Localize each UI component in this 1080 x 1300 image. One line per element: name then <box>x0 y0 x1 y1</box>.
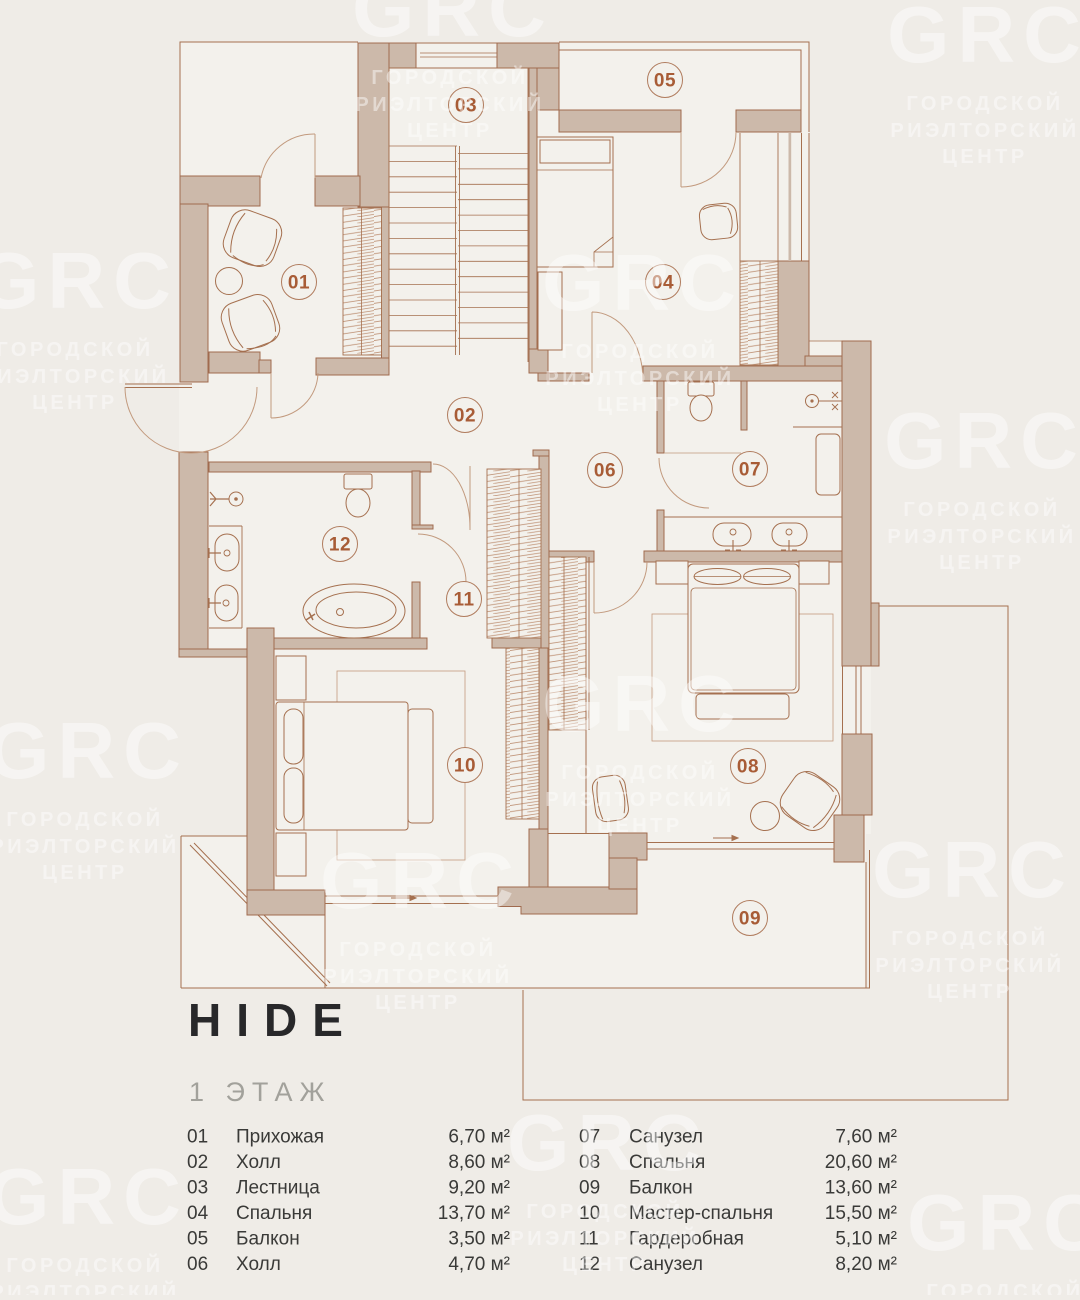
svg-text:02: 02 <box>454 406 476 427</box>
svg-text:01: 01 <box>288 273 310 294</box>
svg-text:07: 07 <box>739 460 761 481</box>
svg-text:GRC: GRC <box>542 238 744 327</box>
svg-text:РИЭЛТОРСКИЙ: РИЭЛТОРСКИЙ <box>0 834 180 858</box>
svg-text:ЦЕНТР: ЦЕНТР <box>42 862 127 884</box>
svg-text:ГОРОДСКОЙ: ГОРОДСКОЙ <box>926 1279 1080 1295</box>
svg-text:09: 09 <box>739 909 761 930</box>
svg-text:ГОРОДСКОЙ: ГОРОДСКОЙ <box>0 337 154 361</box>
svg-text:GRC: GRC <box>0 236 179 325</box>
svg-text:6,70 м²: 6,70 м² <box>448 1127 510 1148</box>
svg-text:РИЭЛТОРСКИЙ: РИЭЛТОРСКИЙ <box>890 118 1079 142</box>
svg-text:10: 10 <box>454 756 476 777</box>
svg-text:РИЭЛТОРСКИЙ: РИЭЛТОРСКИЙ <box>510 1226 699 1250</box>
svg-text:Холл: Холл <box>236 1152 281 1173</box>
svg-text:15,50 м²: 15,50 м² <box>825 1203 897 1224</box>
svg-text:1 ЭТАЖ: 1 ЭТАЖ <box>189 1077 331 1107</box>
svg-text:Балкон: Балкон <box>236 1229 300 1250</box>
svg-text:GRC: GRC <box>507 1098 709 1187</box>
svg-text:ЦЕНТР: ЦЕНТР <box>942 146 1027 168</box>
svg-text:3,50 м²: 3,50 м² <box>448 1229 510 1250</box>
svg-text:GRC: GRC <box>884 396 1080 485</box>
svg-text:GRC: GRC <box>907 1178 1080 1267</box>
svg-text:7,60 м²: 7,60 м² <box>835 1127 897 1148</box>
svg-text:ГОРОДСКОЙ: ГОРОДСКОЙ <box>903 497 1060 521</box>
svg-text:РИЭЛТОРСКИЙ: РИЭЛТОРСКИЙ <box>355 92 544 116</box>
svg-text:ЦЕНТР: ЦЕНТР <box>562 1254 647 1276</box>
svg-text:12: 12 <box>329 535 351 556</box>
svg-text:РИЭЛТОРСКИЙ: РИЭЛТОРСКИЙ <box>0 1280 180 1295</box>
svg-text:РИЭЛТОРСКИЙ: РИЭЛТОРСКИЙ <box>875 953 1064 977</box>
svg-text:ЦЕНТР: ЦЕНТР <box>32 392 117 414</box>
svg-text:GRC: GRC <box>872 825 1074 914</box>
svg-text:ЦЕНТР: ЦЕНТР <box>597 394 682 416</box>
svg-text:GRC: GRC <box>887 0 1080 79</box>
svg-text:GRC: GRC <box>542 659 744 748</box>
svg-text:GRC: GRC <box>352 0 554 53</box>
svg-text:ГОРОДСКОЙ: ГОРОДСКОЙ <box>906 91 1063 115</box>
svg-text:РИЭЛТОРСКИЙ: РИЭЛТОРСКИЙ <box>323 964 512 988</box>
svg-text:ГОРОДСКОЙ: ГОРОДСКОЙ <box>339 937 496 961</box>
svg-text:HIDE: HIDE <box>188 994 358 1046</box>
svg-text:05: 05 <box>187 1229 208 1250</box>
svg-text:ГОРОДСКОЙ: ГОРОДСКОЙ <box>891 926 1048 950</box>
svg-text:ГОРОДСКОЙ: ГОРОДСКОЙ <box>561 339 718 363</box>
svg-text:8,20 м²: 8,20 м² <box>835 1254 897 1275</box>
svg-text:GRC: GRC <box>0 1152 189 1241</box>
svg-text:4,70 м²: 4,70 м² <box>448 1254 510 1275</box>
svg-text:8,60 м²: 8,60 м² <box>448 1152 510 1173</box>
svg-text:Холл: Холл <box>236 1254 281 1275</box>
svg-text:GRC: GRC <box>320 836 522 925</box>
svg-text:Прихожая: Прихожая <box>236 1127 324 1148</box>
svg-text:ЦЕНТР: ЦЕНТР <box>407 120 492 142</box>
svg-text:01: 01 <box>187 1127 208 1148</box>
svg-text:9,20 м²: 9,20 м² <box>448 1178 510 1199</box>
svg-text:ГОРОДСКОЙ: ГОРОДСКОЙ <box>526 1199 683 1223</box>
svg-text:06: 06 <box>187 1254 208 1275</box>
svg-text:РИЭЛТОРСКИЙ: РИЭЛТОРСКИЙ <box>545 787 734 811</box>
svg-text:20,60 м²: 20,60 м² <box>825 1152 897 1173</box>
svg-text:11: 11 <box>453 590 474 611</box>
svg-text:5,10 м²: 5,10 м² <box>835 1229 897 1250</box>
svg-text:06: 06 <box>594 461 616 482</box>
svg-text:ЦЕНТР: ЦЕНТР <box>939 552 1024 574</box>
svg-text:08: 08 <box>737 757 759 778</box>
svg-text:02: 02 <box>187 1152 208 1173</box>
svg-text:ГОРОДСКОЙ: ГОРОДСКОЙ <box>371 65 528 89</box>
svg-text:13,60 м²: 13,60 м² <box>825 1178 897 1199</box>
svg-text:04: 04 <box>187 1203 209 1224</box>
svg-text:ГОРОДСКОЙ: ГОРОДСКОЙ <box>6 807 163 831</box>
svg-text:РИЭЛТОРСКИЙ: РИЭЛТОРСКИЙ <box>0 364 170 388</box>
svg-text:Спальня: Спальня <box>236 1203 312 1224</box>
svg-text:ЦЕНТР: ЦЕНТР <box>375 992 460 1014</box>
svg-text:GRC: GRC <box>0 706 189 795</box>
svg-text:13,70 м²: 13,70 м² <box>438 1203 510 1224</box>
svg-text:03: 03 <box>187 1178 208 1199</box>
svg-text:ЦЕНТР: ЦЕНТР <box>597 815 682 837</box>
svg-text:ЦЕНТР: ЦЕНТР <box>927 981 1012 1003</box>
svg-text:ГОРОДСКОЙ: ГОРОДСКОЙ <box>561 760 718 784</box>
svg-text:ГОРОДСКОЙ: ГОРОДСКОЙ <box>6 1253 163 1277</box>
svg-text:РИЭЛТОРСКИЙ: РИЭЛТОРСКИЙ <box>887 524 1076 548</box>
svg-text:Лестница: Лестница <box>236 1178 320 1199</box>
svg-text:05: 05 <box>654 71 676 92</box>
svg-text:РИЭЛТОРСКИЙ: РИЭЛТОРСКИЙ <box>545 366 734 390</box>
